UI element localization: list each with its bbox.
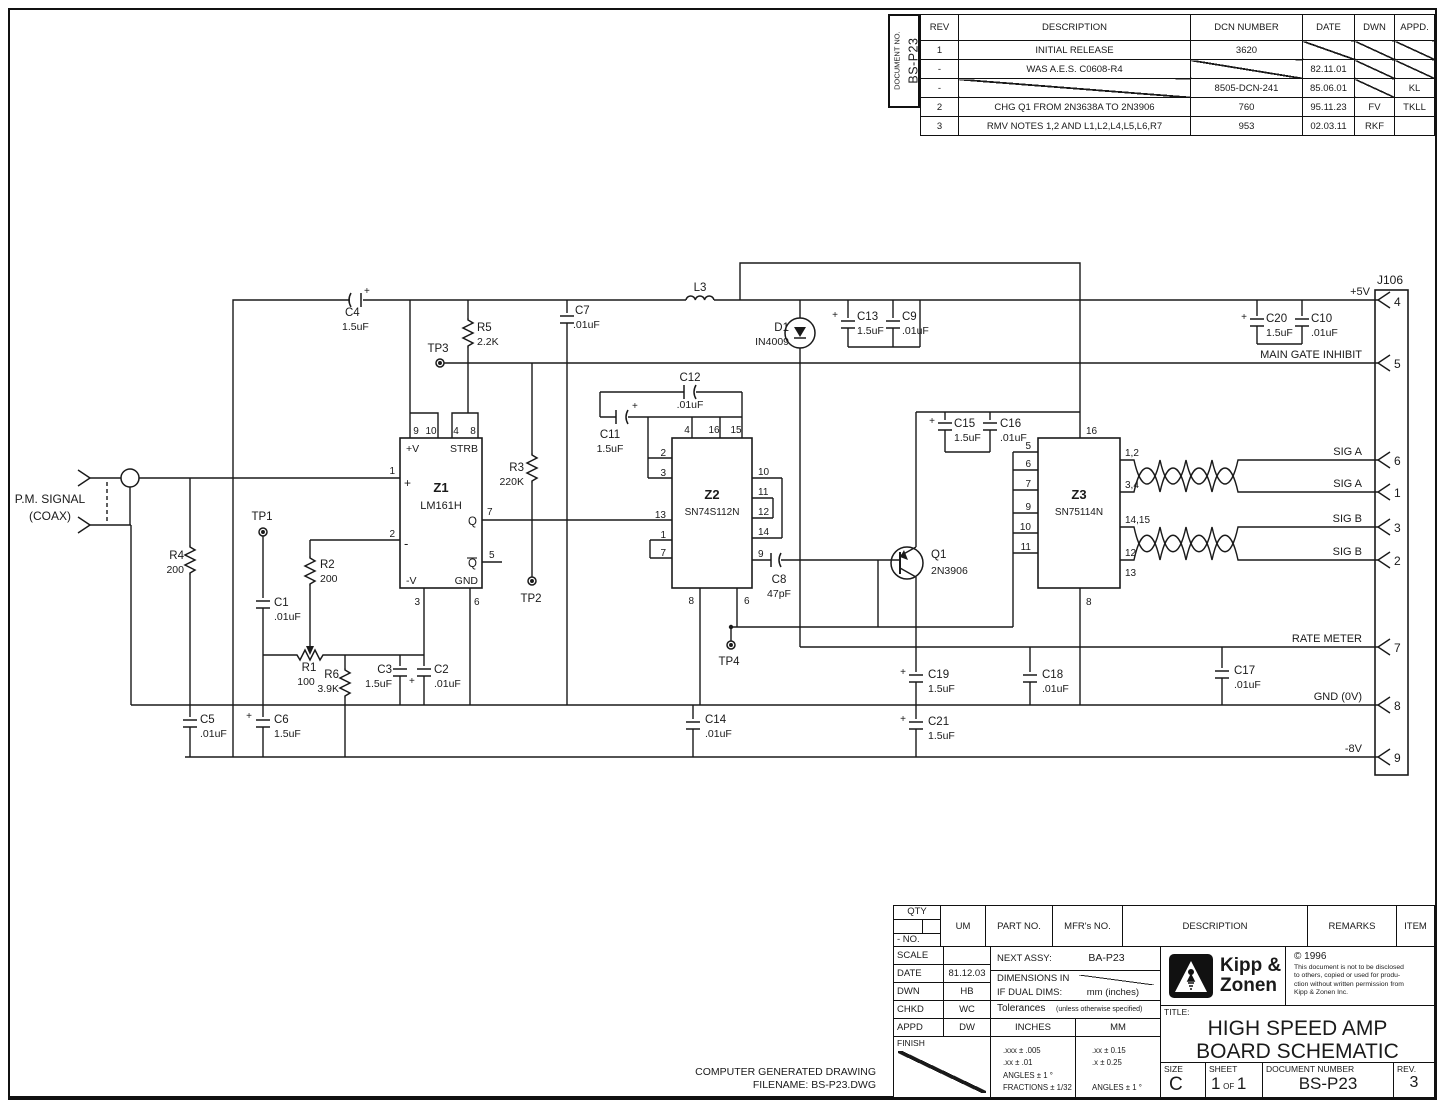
tol-inch-4: FRACTIONS ± 1/32 <box>1003 1082 1075 1094</box>
size-value: C <box>1161 1074 1205 1096</box>
c17-ref: C17 <box>1234 665 1255 677</box>
c6-val: 1.5uF <box>274 728 301 740</box>
r6-ref: R6 <box>324 669 339 681</box>
cap-c18 <box>1023 675 1037 682</box>
z1-plus-input: + <box>404 476 411 490</box>
r3-val: 220K <box>499 476 524 488</box>
z1-minus-input: - <box>404 536 408 551</box>
connector-labels: 4 5 6 1 3 2 7 8 9 <box>1394 295 1401 765</box>
cap-c14 <box>686 722 700 729</box>
z1-vplus: +V <box>406 443 419 455</box>
c1-ref: C1 <box>274 597 289 609</box>
c4-plus: + <box>364 286 370 297</box>
net-labels: +5V MAIN GATE INHIBIT SIG A SIG A SIG B … <box>1260 286 1371 755</box>
d1-val: IN4009 <box>755 336 789 348</box>
c11-val: 1.5uF <box>597 443 624 455</box>
z2-pin1: 1 <box>660 530 666 541</box>
j106-pin6: 6 <box>1394 454 1401 468</box>
z3-pin7: 7 <box>1025 479 1031 490</box>
net-minus8v: -8V <box>1345 743 1363 755</box>
c20-ref: C20 <box>1266 313 1287 325</box>
c12-val: .01uF <box>677 399 704 411</box>
c11-plus: + <box>632 401 638 412</box>
z2-pin13: 13 <box>655 510 667 521</box>
cap-c12 <box>684 385 696 399</box>
tol-inch-3: ANGLES ± 1 ° <box>1003 1070 1075 1082</box>
appd-cell: TKLL <box>1395 98 1435 117</box>
copyright-cell: © 1996 This document is not to be disclo… <box>1285 946 1435 1006</box>
l3-ref: L3 <box>694 282 707 294</box>
coax-connector <box>121 469 139 487</box>
z2-pin8: 8 <box>688 596 694 607</box>
cap-c21 <box>909 722 923 729</box>
z1-pin2: 2 <box>389 529 395 540</box>
revision-row: - 8505-DCN-241 85.06.01 KL <box>921 79 1435 98</box>
rev-col-header: REV <box>921 15 959 41</box>
c8-val: 47pF <box>767 588 791 600</box>
date-label: DATE <box>893 964 944 983</box>
z1-q: Q <box>468 516 477 528</box>
next-assy-value: BA-P23 <box>1088 952 1124 964</box>
sheet-number: 1 <box>1211 1074 1220 1093</box>
tp2-label: TP2 <box>520 593 541 605</box>
c14-val: .01uF <box>705 728 732 740</box>
c17-val: .01uF <box>1234 679 1261 691</box>
c16-val: .01uF <box>1000 432 1027 444</box>
z1-qbar: Q <box>468 558 477 570</box>
finish-label: FINISH <box>894 1037 990 1048</box>
c11-ref: C11 <box>600 429 620 441</box>
r2-val: 200 <box>320 573 338 585</box>
brand-line2: Zonen <box>1220 976 1281 996</box>
testpoint-tp4 <box>727 641 735 649</box>
z3-pin1415: 14,15 <box>1125 515 1150 526</box>
z2-pin15: 15 <box>730 425 742 436</box>
qty-box: QTY - NO. <box>893 905 941 947</box>
c3-plus: + <box>409 676 415 687</box>
mfrs-no-header: MFR's NO. <box>1052 905 1123 947</box>
rev-cell: 3 <box>921 117 959 136</box>
c13-ref: C13 <box>857 311 878 323</box>
diode-d1-triangle <box>794 327 806 337</box>
cap-c15 <box>938 423 952 430</box>
revision-table: REV DESCRIPTION DCN NUMBER DATE DWN APPD… <box>920 14 1435 136</box>
j106-label: J106 <box>1377 273 1403 287</box>
resistor-r2 <box>305 556 315 586</box>
finish-box: FINISH <box>893 1036 991 1098</box>
size-cell: SIZE C <box>1160 1062 1206 1098</box>
logo-cell: Kipp & Zonen <box>1160 946 1286 1006</box>
z1-pin5: 5 <box>489 550 495 561</box>
c15-plus: + <box>929 416 935 427</box>
z2-pin2: 2 <box>660 448 666 459</box>
appd-value: DW <box>943 1018 991 1037</box>
c19-ref: C19 <box>928 669 949 681</box>
z1-ref: Z1 <box>433 480 448 495</box>
cap-c3 <box>393 669 407 676</box>
dwn-cell-slash <box>1355 41 1395 60</box>
z1-pin4: 4 <box>453 426 459 437</box>
z2-pin12: 12 <box>758 507 770 518</box>
r5-val: 2.2K <box>477 336 499 348</box>
sheet-of: OF <box>1223 1082 1234 1091</box>
j106-pin3: 3 <box>1394 521 1401 535</box>
j106-pin9: 9 <box>1394 751 1401 765</box>
cap-c2 <box>417 669 431 676</box>
cap-c16 <box>983 423 997 430</box>
if-dual-dims-label: IF DUAL DIMS: <box>997 987 1062 998</box>
sheet-label: SHEET <box>1206 1063 1262 1074</box>
cap-c4 <box>349 293 361 307</box>
document-number-label: DOCUMENT NUMBER <box>1263 1063 1393 1074</box>
desc-cell: WAS A.E.S. C0608-R4 <box>959 60 1191 79</box>
z3-part: SN75114N <box>1055 507 1103 518</box>
inches-tolerances: .xxx ± .005 .xx ± .01 ANGLES ± 1 ° FRACT… <box>990 1036 1076 1098</box>
z1-pin8: 8 <box>470 426 476 437</box>
tol-inch-2: .xx ± .01 <box>1003 1057 1075 1069</box>
resistor-r6 <box>340 668 350 698</box>
remarks-header: REMARKS <box>1307 905 1397 947</box>
c20-val: 1.5uF <box>1266 327 1293 339</box>
c9-val: .01uF <box>902 325 929 337</box>
document-number-value: BS-P23 <box>1263 1074 1393 1094</box>
testpoint-tp3 <box>436 359 444 367</box>
c5-val: .01uF <box>200 728 227 740</box>
j106-pin4: 4 <box>1394 295 1401 309</box>
tol-mm-1: .xx ± 0.15 <box>1092 1045 1160 1057</box>
z3-pin16: 16 <box>1086 426 1098 437</box>
item-header: ITEM <box>1396 905 1435 947</box>
kipp-zonen-logo <box>1169 954 1213 998</box>
c9-ref: C9 <box>902 311 917 323</box>
j106-pin8: 8 <box>1394 699 1401 713</box>
inches-header: INCHES <box>990 1018 1076 1037</box>
c15-val: 1.5uF <box>954 432 981 444</box>
appd-cell-slash <box>1395 41 1435 60</box>
z1-vminus: -V <box>406 575 417 587</box>
cap-c20 <box>1250 319 1264 326</box>
testpoint-tp2 <box>528 577 536 585</box>
dcn-col-header: DCN NUMBER <box>1191 15 1303 41</box>
c13-val: 1.5uF <box>857 325 884 337</box>
j106-pin5: 5 <box>1394 357 1401 371</box>
r5-ref: R5 <box>477 322 492 334</box>
chkd-label: CHKD <box>893 1000 944 1019</box>
appd-col-header: APPD. <box>1395 15 1435 41</box>
desc-cell-slash <box>959 79 1191 98</box>
dimensions-row: DIMENSIONS IN IF DUAL DIMS: mm (inches) <box>990 970 1161 1001</box>
z2-pin7: 7 <box>660 548 666 559</box>
z1-pin3: 3 <box>414 597 420 608</box>
q1-ref: Q1 <box>931 549 946 561</box>
resistor-r5 <box>463 318 473 348</box>
c4-val: 1.5uF <box>342 321 369 333</box>
c8-ref: C8 <box>772 574 787 586</box>
copyright-line4: Kipp & Zonen Inc. <box>1294 989 1434 997</box>
j106-pin1: 1 <box>1394 486 1401 500</box>
c4-ref: C4 <box>345 307 360 319</box>
z2-pin3: 3 <box>660 468 666 479</box>
rev-cell-block: REV. 3 <box>1393 1062 1435 1098</box>
c21-ref: C21 <box>928 716 949 728</box>
desc-cell: INITIAL RELEASE <box>959 41 1191 60</box>
c6-plus: + <box>246 711 252 722</box>
cap-c6 <box>256 720 270 727</box>
appd-label: APPD <box>893 1018 944 1037</box>
dcn-cell-slash <box>1191 60 1303 79</box>
tp3-label: TP3 <box>427 343 448 355</box>
z1-pin9: 9 <box>413 426 419 437</box>
appd-cell-slash <box>1395 60 1435 79</box>
mm-tolerances: .xx ± 0.15 .x ± 0.25 ANGLES ± 1 ° <box>1075 1036 1161 1098</box>
j106-pin2: 2 <box>1394 554 1401 568</box>
document-no-value: BS-P23 <box>906 38 920 84</box>
cap-c9 <box>886 321 900 328</box>
revision-row: 2 CHG Q1 FROM 2N3638A TO 2N3906 760 95.1… <box>921 98 1435 117</box>
z3-pin6: 6 <box>1025 459 1031 470</box>
net-sig-b-1: SIG B <box>1333 513 1362 525</box>
document-no-box: DOCUMENT NO. BS-P23 <box>888 14 920 108</box>
revision-row: 3 RMV NOTES 1,2 AND L1,L2,L4,L5,L6,R7 95… <box>921 117 1435 136</box>
z3-pin34: 3,4 <box>1125 480 1139 491</box>
z2-ref: Z2 <box>704 487 719 502</box>
z1-gnd: GND <box>455 575 479 587</box>
sheet-cell: SHEET 1 OF 1 <box>1205 1062 1263 1098</box>
tp4-label: TP4 <box>718 656 740 668</box>
dwn-label: DWN <box>893 982 944 1001</box>
scale-label: SCALE <box>893 946 944 965</box>
resistor-r4 <box>185 545 195 575</box>
z3-ref: Z3 <box>1071 487 1086 502</box>
qty-label: QTY <box>894 906 940 920</box>
desc-cell: RMV NOTES 1,2 AND L1,L2,L4,L5,L6,R7 <box>959 117 1191 136</box>
cap-c7 <box>560 316 574 323</box>
z1-pin6: 6 <box>474 597 480 608</box>
c19-plus: + <box>900 667 906 678</box>
dual-dims-value: mm (inches) <box>1087 987 1139 998</box>
document-no-label: DOCUMENT NO. <box>892 32 901 91</box>
c7-ref: C7 <box>575 305 590 317</box>
dimensions-in-label: DIMENSIONS IN <box>997 973 1069 984</box>
tolerances-note: (unless otherwise specified) <box>1056 1006 1142 1013</box>
z2-pin11: 11 <box>758 487 769 498</box>
brand-line1: Kipp & <box>1220 956 1281 976</box>
r4-val: 200 <box>166 564 184 576</box>
chkd-value: WC <box>943 1000 991 1019</box>
testpoint-tp1 <box>259 528 267 536</box>
schematic-sheet: { "rev_table": { "doc_label": "DOCUMENT … <box>0 0 1447 1110</box>
z3-pin12: 12 <box>1125 548 1137 559</box>
z3-pin9: 9 <box>1025 502 1031 513</box>
inductor-l3 <box>686 296 714 300</box>
copyright-line1: This document is not to be disclosed <box>1294 964 1434 972</box>
date-cell: 95.11.23 <box>1303 98 1355 117</box>
r4-ref: R4 <box>169 550 184 562</box>
c12-ref: C12 <box>679 372 700 384</box>
revision-header-row: REV DESCRIPTION DCN NUMBER DATE DWN APPD… <box>921 15 1435 41</box>
next-assy-label: NEXT ASSY: <box>997 953 1052 964</box>
pm-signal-label: P.M. SIGNAL <box>15 492 86 506</box>
c7-val: .01uF <box>573 319 600 331</box>
r1-ref: R1 <box>302 662 317 674</box>
z3-pin11: 11 <box>1021 542 1032 553</box>
sheet-total: 1 <box>1237 1074 1246 1093</box>
dwn-col-header: DWN <box>1355 15 1395 41</box>
c21-plus: + <box>900 714 906 725</box>
description-col-header: DESCRIPTION <box>959 15 1191 41</box>
c1-val: .01uF <box>274 611 301 623</box>
z2-pin9: 9 <box>758 549 764 560</box>
tol-mm-2: .x ± 0.25 <box>1092 1057 1160 1069</box>
um-header: UM <box>940 905 986 947</box>
tol-inch-1: .xxx ± .005 <box>1003 1045 1075 1057</box>
c10-ref: C10 <box>1311 313 1332 325</box>
schematic-labels: P.M. SIGNAL (COAX) TP3 TP1 TP2 TP4 C4 1.… <box>15 273 1404 742</box>
footer-line1: COMPUTER GENERATED DRAWING <box>560 1066 876 1079</box>
z3-pin8: 8 <box>1086 597 1092 608</box>
c18-val: .01uF <box>1042 683 1069 695</box>
c21-val: 1.5uF <box>928 730 955 742</box>
document-number-cell: DOCUMENT NUMBER BS-P23 <box>1262 1062 1394 1098</box>
net-sig-a-2: SIG A <box>1333 478 1362 490</box>
net-main-gate-inhibit: MAIN GATE INHIBIT <box>1260 349 1362 361</box>
dcn-cell: 8505-DCN-241 <box>1191 79 1303 98</box>
date-cell: 02.03.11 <box>1303 117 1355 136</box>
q1-val: 2N3906 <box>931 565 968 577</box>
mm-header: MM <box>1075 1018 1161 1037</box>
c20-plus: + <box>1241 312 1247 323</box>
z3-pin12a: 1,2 <box>1125 448 1139 459</box>
revision-row: - WAS A.E.S. C0608-R4 82.11.01 <box>921 60 1435 79</box>
title-line1: HIGH SPEED AMP <box>1161 1018 1434 1041</box>
z1-pin10: 10 <box>425 426 437 437</box>
title-label: TITLE: <box>1161 1006 1434 1017</box>
appd-cell <box>1395 117 1435 136</box>
cap-c8 <box>771 553 781 567</box>
tolerances-row: Tolerances (unless otherwise specified) <box>990 1000 1161 1019</box>
cap-c5 <box>183 720 197 727</box>
cap-c10 <box>1295 319 1309 326</box>
title-cell: TITLE: HIGH SPEED AMP BOARD SCHEMATIC <box>1160 1005 1435 1063</box>
footer-note: COMPUTER GENERATED DRAWING FILENAME: BS-… <box>560 1066 876 1092</box>
j106-pin7: 7 <box>1394 641 1401 655</box>
date-col-header: DATE <box>1303 15 1355 41</box>
z2-pin10: 10 <box>758 467 770 478</box>
qty-subcells <box>894 920 940 934</box>
cap-c11 <box>616 410 628 424</box>
c2-val: .01uF <box>434 678 461 690</box>
tolerances-label: Tolerances <box>997 1003 1045 1014</box>
coax-label: (COAX) <box>29 509 71 523</box>
rev-label: REV. <box>1394 1063 1434 1074</box>
no-label: - NO. <box>894 934 940 945</box>
c3-val: 1.5uF <box>365 678 392 690</box>
r3-ref: R3 <box>509 462 524 474</box>
c5-ref: C5 <box>200 714 215 726</box>
c6-ref: C6 <box>274 714 289 726</box>
appd-cell: KL <box>1395 79 1435 98</box>
z3-pin13: 13 <box>1125 568 1137 579</box>
dwn-cell: RKF <box>1355 117 1395 136</box>
z1-part: LM161H <box>420 500 462 512</box>
title-line2: BOARD SCHEMATIC <box>1161 1041 1434 1064</box>
z2-pin4: 4 <box>684 425 690 436</box>
c3-ref: C3 <box>377 664 392 676</box>
net-gnd: GND (0V) <box>1314 691 1362 703</box>
tp1-label: TP1 <box>251 511 272 523</box>
desc-cell: CHG Q1 FROM 2N3638A TO 2N3906 <box>959 98 1191 117</box>
c2-ref: C2 <box>434 664 449 676</box>
z1-pin1: 1 <box>389 466 395 477</box>
dimensions-slash <box>1079 975 1154 985</box>
connector-j106-box <box>1375 290 1408 775</box>
part-no-header: PART NO. <box>985 905 1053 947</box>
finish-slash <box>898 1051 986 1093</box>
z2-pin16: 16 <box>708 425 720 436</box>
cap-c17 <box>1215 671 1229 678</box>
copyright-line2: to others, copied or used for produ- <box>1294 972 1434 980</box>
z2-part: SN74S112N <box>685 507 740 518</box>
rev-cell: - <box>921 60 959 79</box>
dcn-cell: 953 <box>1191 117 1303 136</box>
scale-value-slash <box>943 946 991 965</box>
rev-value: 3 <box>1394 1074 1434 1092</box>
dcn-cell: 760 <box>1191 98 1303 117</box>
copyright-year: © 1996 <box>1294 951 1434 962</box>
revision-row: 1 INITIAL RELEASE 3620 <box>921 41 1435 60</box>
c19-val: 1.5uF <box>928 683 955 695</box>
dwn-value: HB <box>943 982 991 1001</box>
z2-pin6: 6 <box>744 596 750 607</box>
rev-cell: 1 <box>921 41 959 60</box>
cap-c19 <box>909 675 923 682</box>
description-header: DESCRIPTION <box>1122 905 1308 947</box>
tol-mm-3: ANGLES ± 1 ° <box>1092 1082 1160 1094</box>
date-cell-slash <box>1303 41 1355 60</box>
date-cell: 82.11.01 <box>1303 60 1355 79</box>
qty-subcell-divider <box>894 920 923 933</box>
c10-val: .01uF <box>1311 327 1338 339</box>
z1-strb: STRB <box>450 443 478 455</box>
z3-pin10: 10 <box>1020 522 1032 533</box>
cap-c1 <box>256 601 270 608</box>
junction-dot <box>729 625 733 629</box>
net-plus5v: +5V <box>1350 286 1371 298</box>
dwn-cell-slash <box>1355 60 1395 79</box>
footer-line2: FILENAME: BS-P23.DWG <box>560 1079 876 1092</box>
date-value: 81.12.03 <box>943 964 991 983</box>
z1-pin7: 7 <box>487 507 493 518</box>
cap-c13 <box>841 321 855 328</box>
r2-ref: R2 <box>320 559 335 571</box>
r6-val: 3.9K <box>317 683 339 695</box>
c18-ref: C18 <box>1042 669 1063 681</box>
dwn-cell-slash <box>1355 79 1395 98</box>
c15-ref: C15 <box>954 418 975 430</box>
net-rate-meter: RATE METER <box>1292 633 1362 645</box>
c16-ref: C16 <box>1000 418 1021 430</box>
copyright-line3: ction without written permission from <box>1294 981 1434 989</box>
rev-cell: 2 <box>921 98 959 117</box>
next-assy-row: NEXT ASSY: BA-P23 <box>990 946 1161 971</box>
c14-ref: C14 <box>705 714 727 726</box>
c13-plus: + <box>832 310 838 321</box>
dcn-cell: 3620 <box>1191 41 1303 60</box>
dwn-cell: FV <box>1355 98 1395 117</box>
net-sig-a-1: SIG A <box>1333 446 1362 458</box>
date-cell: 85.06.01 <box>1303 79 1355 98</box>
z2-pin14: 14 <box>758 527 770 538</box>
